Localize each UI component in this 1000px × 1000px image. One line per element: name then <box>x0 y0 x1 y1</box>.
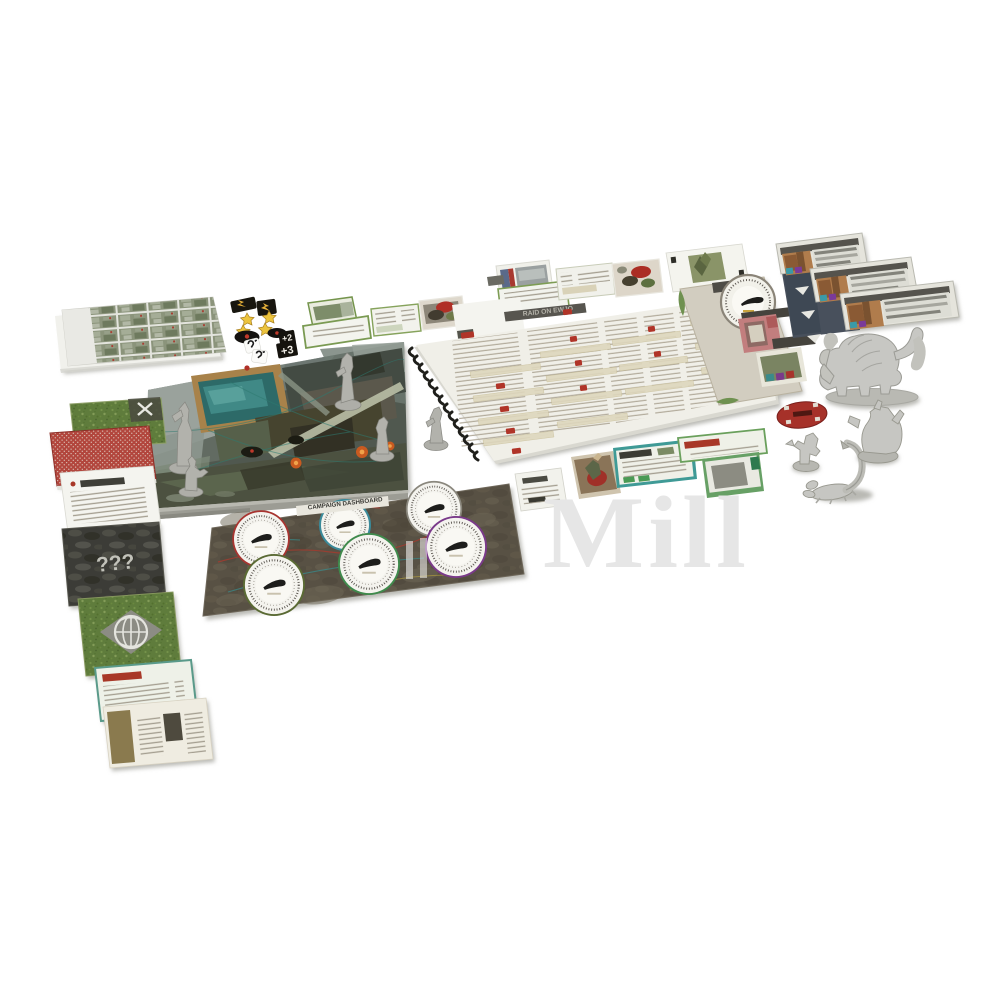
svg-text:Mill: Mill <box>543 475 750 590</box>
svg-text:+3: +3 <box>280 344 294 358</box>
svg-text:???: ??? <box>95 550 136 577</box>
